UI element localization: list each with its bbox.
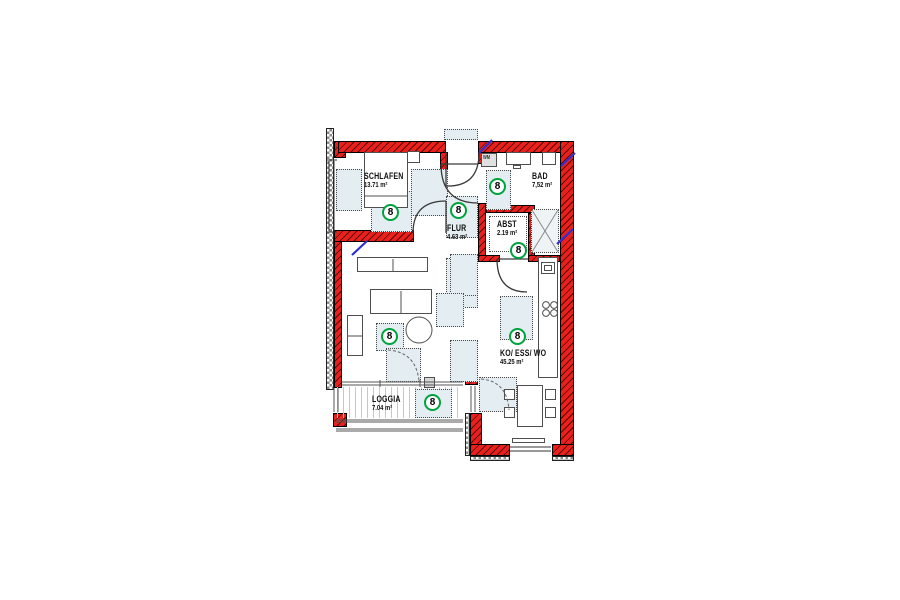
unit-marker-flur: 8 (450, 202, 467, 219)
room-label-loggia: LOGGIA 7.04 m² (372, 394, 401, 413)
wall-right (560, 141, 574, 456)
placeholder-schlafen-left (336, 169, 362, 211)
room-area: 2.19 m² (497, 229, 517, 238)
room-area: 7,52 m² (532, 181, 552, 190)
kitchen-sink-basin (544, 265, 552, 271)
lintel-mark (352, 241, 367, 255)
window-junction-box (424, 377, 435, 388)
bath-sink-tap (513, 165, 521, 169)
existing-wall-left (326, 128, 334, 390)
entry-doormat (444, 129, 478, 140)
placeholder-schlafen-right (411, 169, 448, 216)
wall-left-lower (334, 232, 342, 388)
abst-door-swing (497, 259, 527, 292)
wall-bottom-left (470, 444, 510, 456)
shelf (347, 315, 363, 356)
radiator (512, 438, 545, 443)
washing-machine-label: WM (483, 155, 490, 161)
room-area: 7.04 m² (372, 404, 401, 413)
unit-marker-bad: 8 (489, 178, 506, 195)
bath-wc (542, 152, 556, 165)
wall-flur-abst (478, 203, 486, 262)
dining-table (517, 385, 543, 427)
placeholder-living-2 (436, 293, 464, 327)
wall-bottom-right (552, 444, 574, 456)
room-label-koesswo: KO/ ESS/ WO 45.25 m² (500, 348, 546, 367)
dining-chair-4 (545, 407, 556, 418)
floor-plan-canvas: SCHLAFEN 13.71 m² BAD 7,52 m² FLUR 4.63 … (0, 0, 900, 600)
existing-wall-bottom-right (552, 456, 574, 461)
unit-marker-living: 8 (381, 328, 398, 345)
unit-marker-schlafen: 8 (382, 204, 399, 221)
dining-chair-3 (545, 389, 556, 400)
room-label-schlafen: SCHLAFEN 13.71 m² (364, 171, 403, 190)
wall-abst-bottom-left (478, 255, 500, 262)
unit-marker-loggia: 8 (424, 394, 441, 411)
room-area: 13.71 m² (364, 181, 403, 190)
entry-door-swing (446, 153, 479, 186)
placeholder-living-3 (450, 340, 478, 382)
dining-chair-1 (504, 389, 515, 400)
placeholder-living-1 (450, 254, 478, 296)
unit-marker-koesswo: 8 (509, 328, 526, 345)
existing-wall-bottom-left (470, 456, 510, 461)
shaft (531, 209, 559, 253)
bath-sink (506, 152, 531, 165)
room-label-abst: ABST 2.19 m² (497, 219, 517, 238)
sofa (370, 289, 432, 314)
room-label-flur: FLUR 4.63 m² (447, 223, 467, 242)
nightstand (407, 151, 420, 163)
unit-marker-abst: 8 (510, 242, 527, 259)
sideboard (357, 257, 428, 272)
room-area: 4.63 m² (447, 233, 467, 242)
dining-chair-2 (504, 407, 515, 418)
round-table (406, 317, 432, 343)
room-label-bad: BAD 7,52 m² (532, 171, 552, 190)
placeholder-loggia-door (386, 348, 421, 382)
room-area: 45.25 m² (500, 358, 546, 367)
